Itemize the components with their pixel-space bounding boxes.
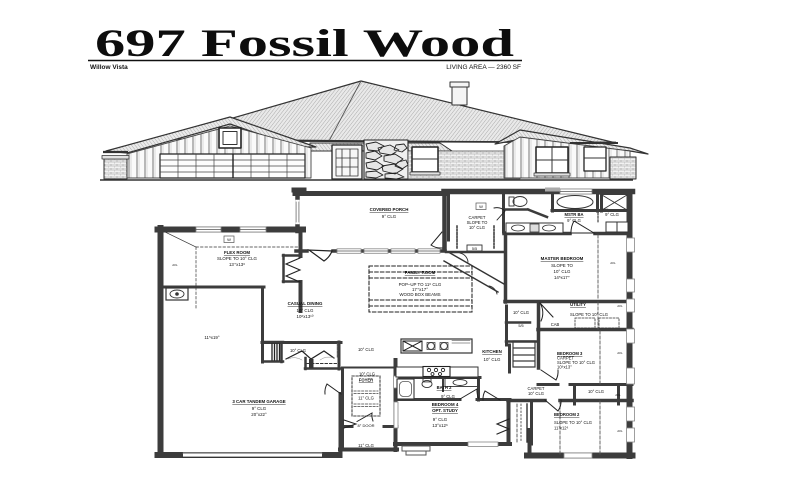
svg-text:SLOPE TO 10° CLG: SLOPE TO 10° CLG (554, 420, 592, 425)
svg-text:10⁹x13°: 10⁹x13° (557, 365, 572, 370)
svg-text:SLOPE TO 10° CLG: SLOPE TO 10° CLG (217, 256, 257, 261)
svg-text:AVL: AVL (617, 304, 623, 308)
svg-text:13⁺x13⁶: 13⁺x13⁶ (229, 262, 245, 267)
svg-text:OPT. STUDY: OPT. STUDY (432, 408, 458, 413)
svg-text:FOYER: FOYER (359, 378, 373, 383)
svg-text:10° CLG: 10° CLG (297, 308, 314, 313)
svg-text:9° CLG: 9° CLG (382, 214, 397, 219)
svg-text:10° CLG: 10° CLG (554, 269, 571, 274)
svg-text:AVL: AVL (172, 263, 178, 267)
svg-text:FLEX ROOM: FLEX ROOM (224, 250, 250, 255)
svg-text:10° CLG: 10° CLG (513, 310, 529, 315)
svg-text:W: W (479, 204, 483, 209)
svg-text:BEDROOM 4: BEDROOM 4 (432, 402, 459, 407)
svg-text:AVL: AVL (615, 393, 621, 397)
svg-text:W: W (227, 237, 231, 242)
svg-text:KITCHEN: KITCHEN (482, 349, 502, 354)
svg-text:COVERED PORCH: COVERED PORCH (370, 207, 409, 212)
svg-text:10° CLG: 10° CLG (359, 372, 375, 377)
svg-text:13°x12⁶: 13°x12⁶ (432, 423, 448, 428)
svg-text:UTILITY: UTILITY (570, 302, 586, 307)
svg-text:10° CLG: 10° CLG (290, 348, 306, 353)
svg-text:CAB: CAB (551, 322, 560, 327)
svg-text:BEDROOM 2: BEDROOM 2 (554, 412, 580, 417)
svg-text:CASUAL DINING: CASUAL DINING (288, 301, 323, 306)
svg-text:BATH 2: BATH 2 (437, 385, 452, 390)
svg-text:MASTER BEDROOM: MASTER BEDROOM (541, 256, 584, 261)
svg-text:20°x22°: 20°x22° (251, 412, 267, 417)
svg-text:9° CLG: 9° CLG (605, 212, 619, 217)
svg-text:Willow Vista: Willow Vista (90, 64, 128, 71)
svg-text:WOOD BOX BEAMS: WOOD BOX BEAMS (399, 292, 440, 297)
svg-text:LIVING AREA — 2360 SF: LIVING AREA — 2360 SF (446, 64, 521, 71)
svg-text:697 Fossil Wood: 697 Fossil Wood (95, 22, 514, 65)
svg-text:10° CLG: 10° CLG (528, 391, 544, 396)
svg-text:8° DOOR: 8° DOOR (358, 423, 375, 428)
svg-text:11° CLG: 11° CLG (358, 443, 374, 448)
svg-text:9° CLG: 9° CLG (567, 218, 581, 223)
svg-text:10° CLG: 10° CLG (484, 357, 501, 362)
svg-text:FAMILY ROOM: FAMILY ROOM (405, 270, 436, 275)
svg-text:14⁵x17⁺: 14⁵x17⁺ (554, 275, 570, 280)
svg-text:SLOPE TO: SLOPE TO (551, 263, 573, 268)
svg-text:AVL: AVL (617, 429, 623, 433)
svg-text:MSTR BA: MSTR BA (564, 212, 583, 217)
svg-text:9° CLG: 9° CLG (441, 394, 455, 399)
svg-text:10° CLG: 10° CLG (469, 225, 485, 230)
svg-text:11⁵x19°: 11⁵x19° (204, 335, 219, 340)
svg-text:3 CAR TANDEM GARAGE: 3 CAR TANDEM GARAGE (232, 399, 285, 404)
svg-text:AVL: AVL (610, 261, 616, 265)
svg-text:SLOPE TO 10° CLG: SLOPE TO 10° CLG (570, 312, 608, 317)
svg-text:10° CLG: 10° CLG (358, 347, 374, 352)
svg-text:5/5: 5/5 (518, 324, 523, 328)
svg-text:AVL: AVL (617, 351, 623, 355)
svg-text:9° CLG: 9° CLG (433, 417, 448, 422)
svg-text:10⁶x13¹⁰: 10⁶x13¹⁰ (297, 314, 314, 319)
svg-text:11⁷x12⁶: 11⁷x12⁶ (554, 426, 569, 431)
svg-text:10° CLG: 10° CLG (588, 389, 604, 394)
svg-text:5/5: 5/5 (472, 247, 477, 251)
svg-text:11° CLG: 11° CLG (358, 396, 374, 401)
svg-text:9° CLG: 9° CLG (252, 406, 267, 411)
